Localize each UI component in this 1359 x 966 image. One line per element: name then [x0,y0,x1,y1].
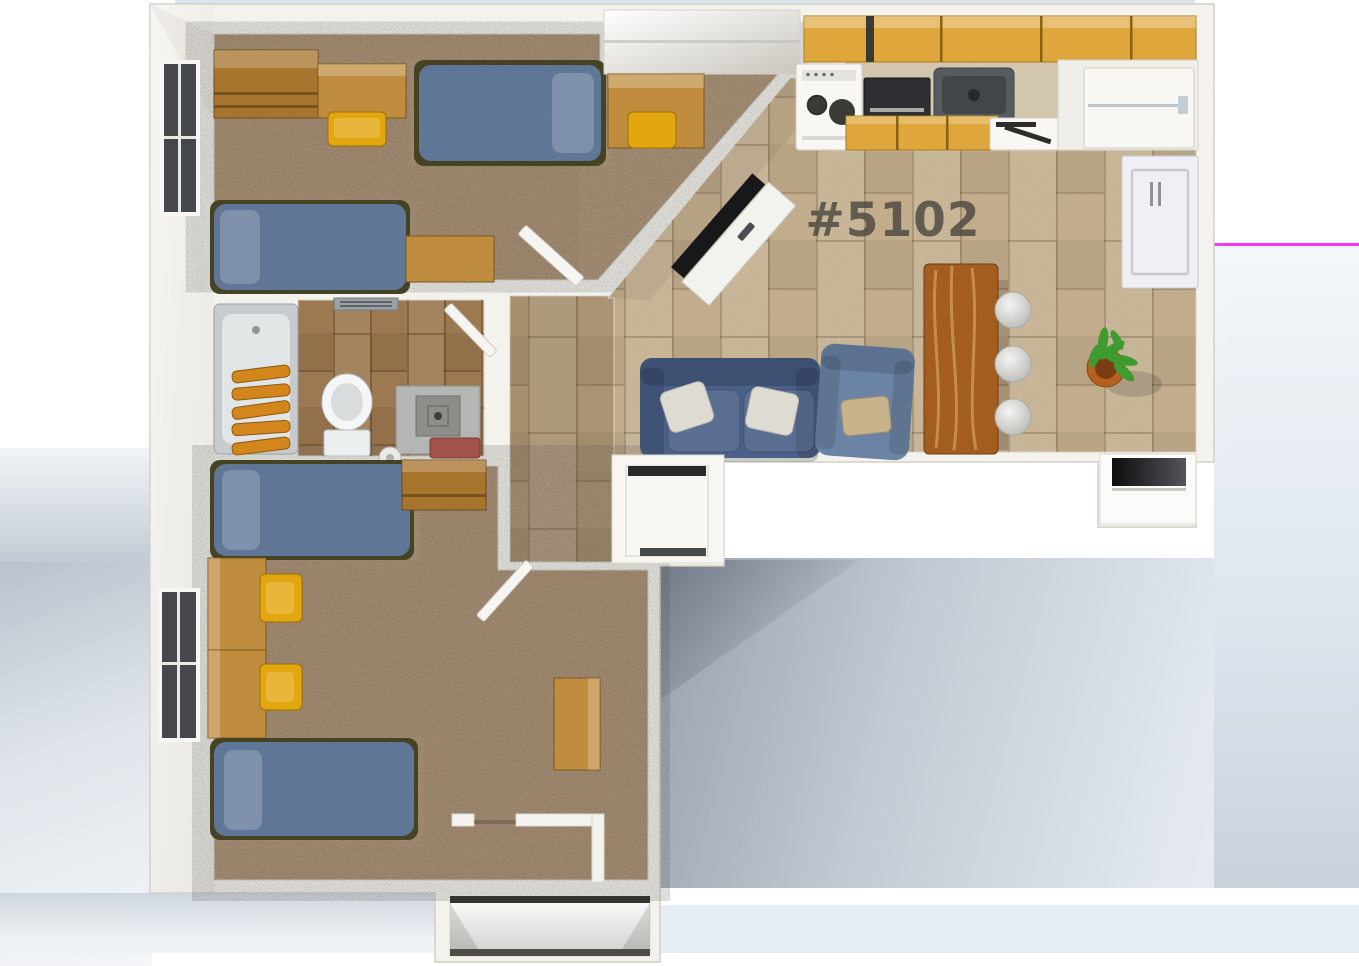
entry-alcove [450,896,650,956]
storage-nook [1100,454,1196,524]
desk [318,64,406,118]
desk-chair [628,112,676,148]
desk [406,236,494,282]
armchair [814,343,916,461]
water-heater [626,466,708,556]
toilet [322,374,372,456]
lower-cabinets [846,116,998,150]
wall-door [1122,156,1198,288]
desk [208,558,266,650]
floorplan-svg: #5102 [0,0,1359,966]
bed [210,738,418,840]
stool [995,399,1031,435]
window [160,60,200,216]
sink [934,68,1014,122]
stool [995,346,1031,382]
refrigerator [1058,60,1198,150]
red-towel [430,438,480,458]
bed [414,60,606,166]
vent [334,298,398,310]
microwave [864,78,930,118]
unit-label: #5102 [805,193,980,248]
loveseat [640,358,820,462]
stool [995,292,1031,328]
utility-closet [612,455,724,563]
bed [210,460,414,560]
upper-cabinets [804,16,1196,62]
wardrobe [214,50,318,118]
desk [208,650,266,738]
desk-chair [328,112,386,146]
window [158,588,200,742]
dresser [402,460,486,510]
tile-hallway [510,296,614,562]
throw-pillow [840,396,892,437]
desk [554,678,600,770]
bed [210,200,410,294]
dishwasher [990,118,1066,150]
floorplan-render: #5102 [0,0,1359,966]
desk-chair [260,664,302,710]
built-in-closet [604,10,800,74]
desk-chair [260,574,302,622]
